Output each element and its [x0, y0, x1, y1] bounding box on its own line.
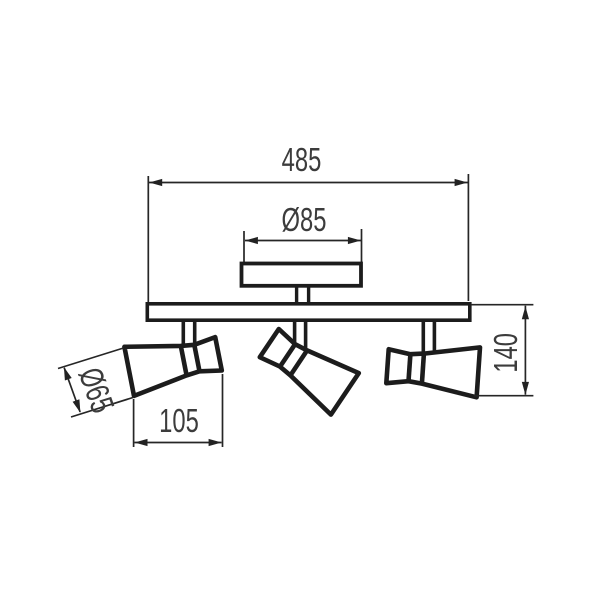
svg-text:105: 105 [159, 403, 199, 440]
svg-text:140: 140 [488, 333, 525, 373]
svg-text:Ø85: Ø85 [282, 202, 327, 239]
svg-text:485: 485 [282, 142, 322, 179]
